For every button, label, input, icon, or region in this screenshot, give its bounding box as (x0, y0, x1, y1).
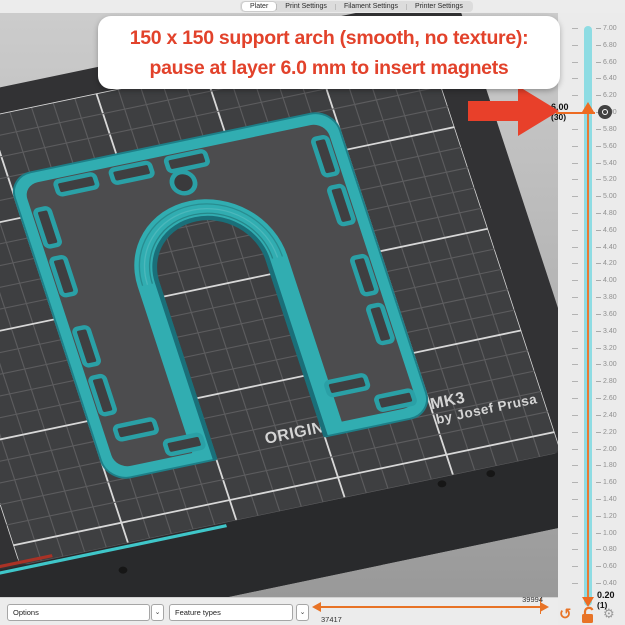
layer-tick: 4.40 (558, 243, 625, 252)
layer-tick: 1.40 (558, 495, 625, 504)
layer-tick: 1.60 (558, 478, 625, 487)
layer-tick: 3.40 (558, 327, 625, 336)
layer-tick: 5.60 (558, 142, 625, 151)
tab-plater[interactable]: Plater (242, 2, 276, 11)
layer-tick: 3.20 (558, 344, 625, 353)
undo-icon[interactable]: ↺ (559, 605, 572, 623)
settings-tab-bar: PlaterPrint SettingsFilament SettingsPri… (0, 0, 625, 13)
tab-print-settings[interactable]: Print Settings (277, 2, 335, 11)
layer-tick: 7.00 (558, 24, 625, 33)
layer-tick: 1.00 (558, 529, 625, 538)
layer-tick: 2.20 (558, 428, 625, 437)
layer-tick: 2.40 (558, 411, 625, 420)
layer-tick: 6.60 (558, 58, 625, 67)
layer-tick: 3.60 (558, 310, 625, 319)
layer-tick: 5.00 (558, 192, 625, 201)
layer-tick: 4.20 (558, 259, 625, 268)
layer-tick: 3.00 (558, 360, 625, 369)
tab-filament-settings[interactable]: Filament Settings (336, 2, 406, 11)
annotation-banner: 150 x 150 support arch (smooth, no textu… (98, 16, 560, 89)
layer-tick: 4.00 (558, 276, 625, 285)
layer-tick: 5.20 (558, 175, 625, 184)
layer-tick: 6.80 (558, 41, 625, 50)
layer-tick: 1.80 (558, 461, 625, 470)
layer-tick: 2.80 (558, 377, 625, 386)
layer-tick: 6.40 (558, 74, 625, 83)
banner-line-1: 150 x 150 support arch (smooth, no textu… (98, 23, 560, 53)
gear-icon[interactable]: ⚙ (603, 607, 615, 622)
layer-tick: 0.60 (558, 562, 625, 571)
feature-types-dropdown[interactable]: Feature types (169, 604, 293, 621)
tab-group: PlaterPrint SettingsFilament SettingsPri… (240, 1, 473, 12)
move-slider-left-handle[interactable] (312, 602, 321, 612)
layer-tick: 3.80 (558, 293, 625, 302)
banner-line-2: pause at layer 6.0 mm to insert magnets (98, 53, 560, 83)
pause-print-marker-icon[interactable] (598, 105, 612, 119)
unlock-icon[interactable] (580, 606, 596, 625)
layer-slider-panel: 7.006.806.606.406.206.005.805.605.405.20… (558, 0, 625, 625)
annotation-arrow-icon (465, 84, 561, 138)
options-chevron-down-icon[interactable]: ⌄ (151, 604, 164, 621)
layer-tick: 0.80 (558, 545, 625, 554)
layer-tick: 5.40 (558, 159, 625, 168)
layer-slider-range (587, 113, 589, 600)
layer-tick: 6.20 (558, 91, 625, 100)
layer-tick: 0.40 (558, 579, 625, 588)
layer-slider-upper-handle[interactable] (582, 102, 594, 112)
move-slider-lower-value: 37417 (321, 615, 342, 624)
layer-tick: 5.80 (558, 125, 625, 134)
layer-tick: 1.20 (558, 512, 625, 521)
layer-tick: 2.60 (558, 394, 625, 403)
layer-tick: 2.00 (558, 445, 625, 454)
feature-types-chevron-down-icon[interactable]: ⌄ (296, 604, 309, 621)
move-slider-upper-value: 39994 (505, 595, 543, 604)
layer-tick: 4.60 (558, 226, 625, 235)
options-dropdown[interactable]: Options (7, 604, 150, 621)
move-slider-track[interactable] (319, 606, 541, 608)
preview-bottom-toolbar: Options ⌄ Feature types ⌄ (0, 597, 558, 625)
layer-tick: 4.80 (558, 209, 625, 218)
tab-printer-settings[interactable]: Printer Settings (407, 2, 471, 11)
